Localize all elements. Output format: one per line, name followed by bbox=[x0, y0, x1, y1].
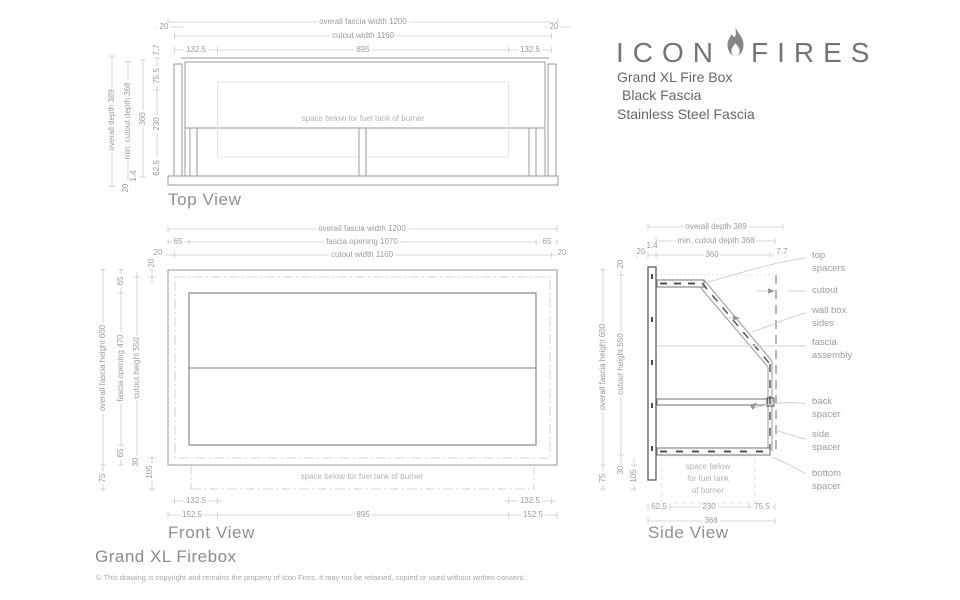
side-view-title: Side View bbox=[648, 523, 729, 543]
callout-top-spacers: top spacers bbox=[812, 249, 845, 276]
drawing-sheet: overall fascia width 1200 20 20 cutout w… bbox=[0, 0, 960, 600]
dim-20-top: 20 bbox=[617, 258, 625, 271]
dim-seg-152-right: 152.5 bbox=[521, 511, 545, 519]
dim-fascia-opening-w: fascia opening 1070 bbox=[324, 238, 400, 246]
dim-overall-fascia-width: overall fascia width 1200 bbox=[317, 18, 409, 26]
dim-cutout-width: cutout width 1160 bbox=[330, 32, 396, 40]
dim-overall-depth: overall depth 389 bbox=[683, 223, 748, 231]
dim-seg-62-5: 62.5 bbox=[649, 503, 669, 511]
logo-word-icon: ICON bbox=[616, 37, 722, 69]
dim-overall-fascia-height: overall fascia height 600 bbox=[599, 322, 607, 412]
dim-105: 105 bbox=[146, 463, 154, 480]
front-view-title: Front View bbox=[168, 523, 255, 543]
dim-min-cutout-depth: min. cutout depth 368 bbox=[124, 81, 132, 162]
logo-word-fires: FIRES bbox=[751, 37, 878, 69]
dim-edge-20-right: 20 bbox=[548, 23, 561, 31]
dim-1-4: 1.4 bbox=[130, 168, 138, 183]
dim-edge-20-left: 20 bbox=[158, 23, 171, 31]
dim-75: 75 bbox=[599, 472, 607, 485]
dim-seg-75-5: 75.5 bbox=[752, 503, 772, 511]
dim-75: 75 bbox=[99, 472, 107, 485]
dim-overall-depth: overall depth 389 bbox=[108, 87, 116, 152]
dim-75-5: 75.5 bbox=[153, 66, 161, 86]
dim-20-right: 20 bbox=[556, 249, 569, 257]
top-view-linework bbox=[109, 19, 570, 186]
product-description: Grand XL Fire Box Black Fascia Stainless… bbox=[617, 68, 755, 123]
flame-icon bbox=[722, 27, 749, 72]
dim-seg-132-right: 132.5 bbox=[518, 46, 542, 54]
callout-wall-box-sides: wall box sides bbox=[812, 304, 846, 331]
dim-30: 30 bbox=[132, 456, 140, 469]
dim-seg-230: 230 bbox=[700, 503, 717, 511]
dim-seg-132-right: 132.5 bbox=[518, 497, 542, 505]
dim-depth-360: 360 bbox=[139, 110, 147, 127]
dim-62-5: 62.5 bbox=[153, 158, 161, 178]
dim-cutout-height: cutout height 550 bbox=[133, 335, 141, 400]
dim-overall-fascia-width: overall fascia width 1200 bbox=[316, 225, 408, 233]
callout-fascia-assembly: fascia assembly bbox=[812, 336, 852, 363]
top-view-note: space below for fuel tank of burner bbox=[302, 113, 425, 125]
dim-seg-132-left: 132.5 bbox=[184, 497, 208, 505]
product-line-1: Grand XL Fire Box bbox=[617, 68, 755, 86]
front-view-note: space below for fuel tank of burner bbox=[301, 471, 424, 483]
dim-65-bottom: 65 bbox=[117, 447, 125, 460]
dim-cutout-width: cutout width 1160 bbox=[329, 251, 395, 259]
technical-drawing-linework bbox=[0, 0, 960, 600]
dim-overall-fascia-height: overall fascia height 600 bbox=[99, 323, 107, 413]
callout-side-spacer: side spacer bbox=[812, 428, 841, 455]
dim-seg-895: 895 bbox=[354, 46, 371, 54]
dim-seg-132-left: 132.5 bbox=[184, 46, 208, 54]
product-line-3: Stainless Steel Fascia bbox=[617, 105, 755, 123]
dim-fascia-opening-h: fascia opening 470 bbox=[117, 332, 125, 403]
dim-seg-152-left: 152.5 bbox=[180, 511, 204, 519]
dim-base-20: 20 bbox=[122, 182, 130, 195]
dim-seg-895: 895 bbox=[354, 511, 371, 519]
dim-30: 30 bbox=[617, 464, 625, 477]
dim-105: 105 bbox=[630, 467, 638, 484]
dim-65-right: 65 bbox=[541, 238, 554, 246]
callout-bottom-spacer: bottom spacer bbox=[812, 467, 841, 494]
sheet-title: Grand XL Firebox bbox=[95, 547, 237, 567]
product-line-2: Black Fascia bbox=[617, 86, 755, 104]
copyright-notice: © This drawing is copyright and remains … bbox=[96, 573, 525, 582]
dim-cutout-height: cutout height 550 bbox=[617, 331, 625, 396]
dim-65-left: 65 bbox=[172, 238, 185, 246]
dim-230: 230 bbox=[153, 115, 161, 132]
dim-65-top: 65 bbox=[117, 275, 125, 288]
top-view-title: Top View bbox=[168, 190, 241, 210]
callout-cutout: cutout bbox=[812, 284, 838, 297]
dim-1-4: 1.4 bbox=[644, 242, 659, 250]
dim-7-7: 7.7 bbox=[153, 42, 161, 57]
dim-min-cutout-depth: min. cutout depth 368 bbox=[676, 237, 757, 245]
callout-back-spacer: back spacer bbox=[812, 395, 841, 422]
dim-360: 360 bbox=[703, 251, 720, 259]
side-view-note: space below for fuel tank of burner bbox=[686, 461, 730, 497]
dim-20-top: 20 bbox=[148, 257, 156, 270]
dim-7-7: 7.7 bbox=[774, 248, 789, 256]
